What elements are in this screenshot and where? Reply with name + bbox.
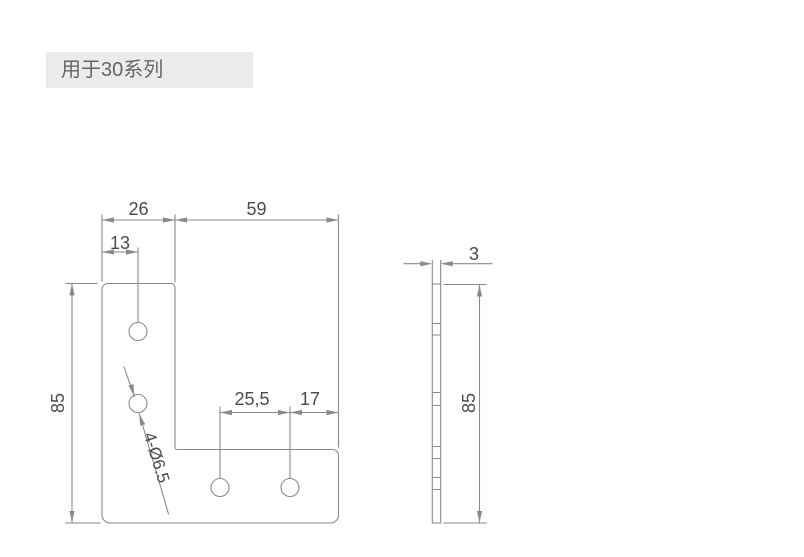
side-view-hole-lines <box>432 324 440 490</box>
ext-lines-thickness <box>432 261 440 284</box>
dim-label-arm-width: 26 <box>102 199 175 219</box>
dim-label-height-front: 85 <box>48 383 68 423</box>
dim-label-height-side: 85 <box>459 383 479 423</box>
ext-lines-85-left <box>66 284 100 524</box>
dim-label-inner-width: 59 <box>175 199 338 219</box>
dim-label-hole-to-edge: 17 <box>286 389 334 409</box>
page: 用于30系列 <box>0 0 804 557</box>
centerlines-bottom-holes <box>220 407 290 478</box>
technical-drawing <box>0 0 804 557</box>
hole-middle <box>129 395 147 413</box>
hole-top <box>129 323 147 341</box>
hole-bottom-left <box>211 479 229 497</box>
side-view-outline <box>432 284 440 523</box>
hole-bottom-right <box>281 479 299 497</box>
dim-label-hole-offset: 13 <box>98 233 142 253</box>
dim-label-hole-spacing: 25,5 <box>217 389 287 409</box>
dim-label-thickness: 3 <box>460 244 488 264</box>
